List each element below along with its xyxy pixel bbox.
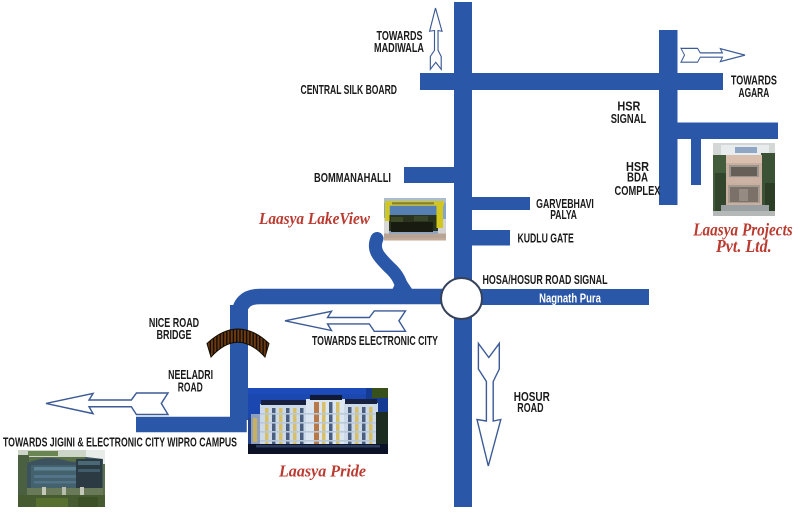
svg-text:SIGNAL: SIGNAL xyxy=(611,111,646,126)
svg-text:Nagnath Pura: Nagnath Pura xyxy=(539,291,601,306)
svg-text:BOMMANAHALLI: BOMMANAHALLI xyxy=(314,170,391,185)
svg-text:CENTRAL SILK BOARD: CENTRAL SILK BOARD xyxy=(301,82,398,97)
svg-text:ROAD: ROAD xyxy=(517,400,543,415)
svg-text:KUDLU GATE: KUDLU GATE xyxy=(518,231,574,246)
svg-text:COMPLEX: COMPLEX xyxy=(615,183,661,198)
svg-text:BRIDGE: BRIDGE xyxy=(157,327,192,342)
svg-text:HOSA/HOSUR ROAD SIGNAL: HOSA/HOSUR ROAD SIGNAL xyxy=(483,272,608,287)
svg-text:PALYA: PALYA xyxy=(550,207,577,222)
svg-text:Laasya LakeView: Laasya LakeView xyxy=(258,209,370,228)
svg-text:Pvt. Ltd.: Pvt. Ltd. xyxy=(715,236,771,256)
svg-text:Laasya Pride: Laasya Pride xyxy=(278,462,366,481)
svg-text:AGARA: AGARA xyxy=(739,85,770,100)
svg-text:ROAD: ROAD xyxy=(178,380,203,395)
svg-text:TOWARDS JIGINI & ELECTRONIC CI: TOWARDS JIGINI & ELECTRONIC CITY WIPRO C… xyxy=(3,435,237,450)
svg-text:MADIWALA: MADIWALA xyxy=(374,40,424,55)
svg-text:TOWARDS ELECTRONIC CITY: TOWARDS ELECTRONIC CITY xyxy=(312,333,438,348)
